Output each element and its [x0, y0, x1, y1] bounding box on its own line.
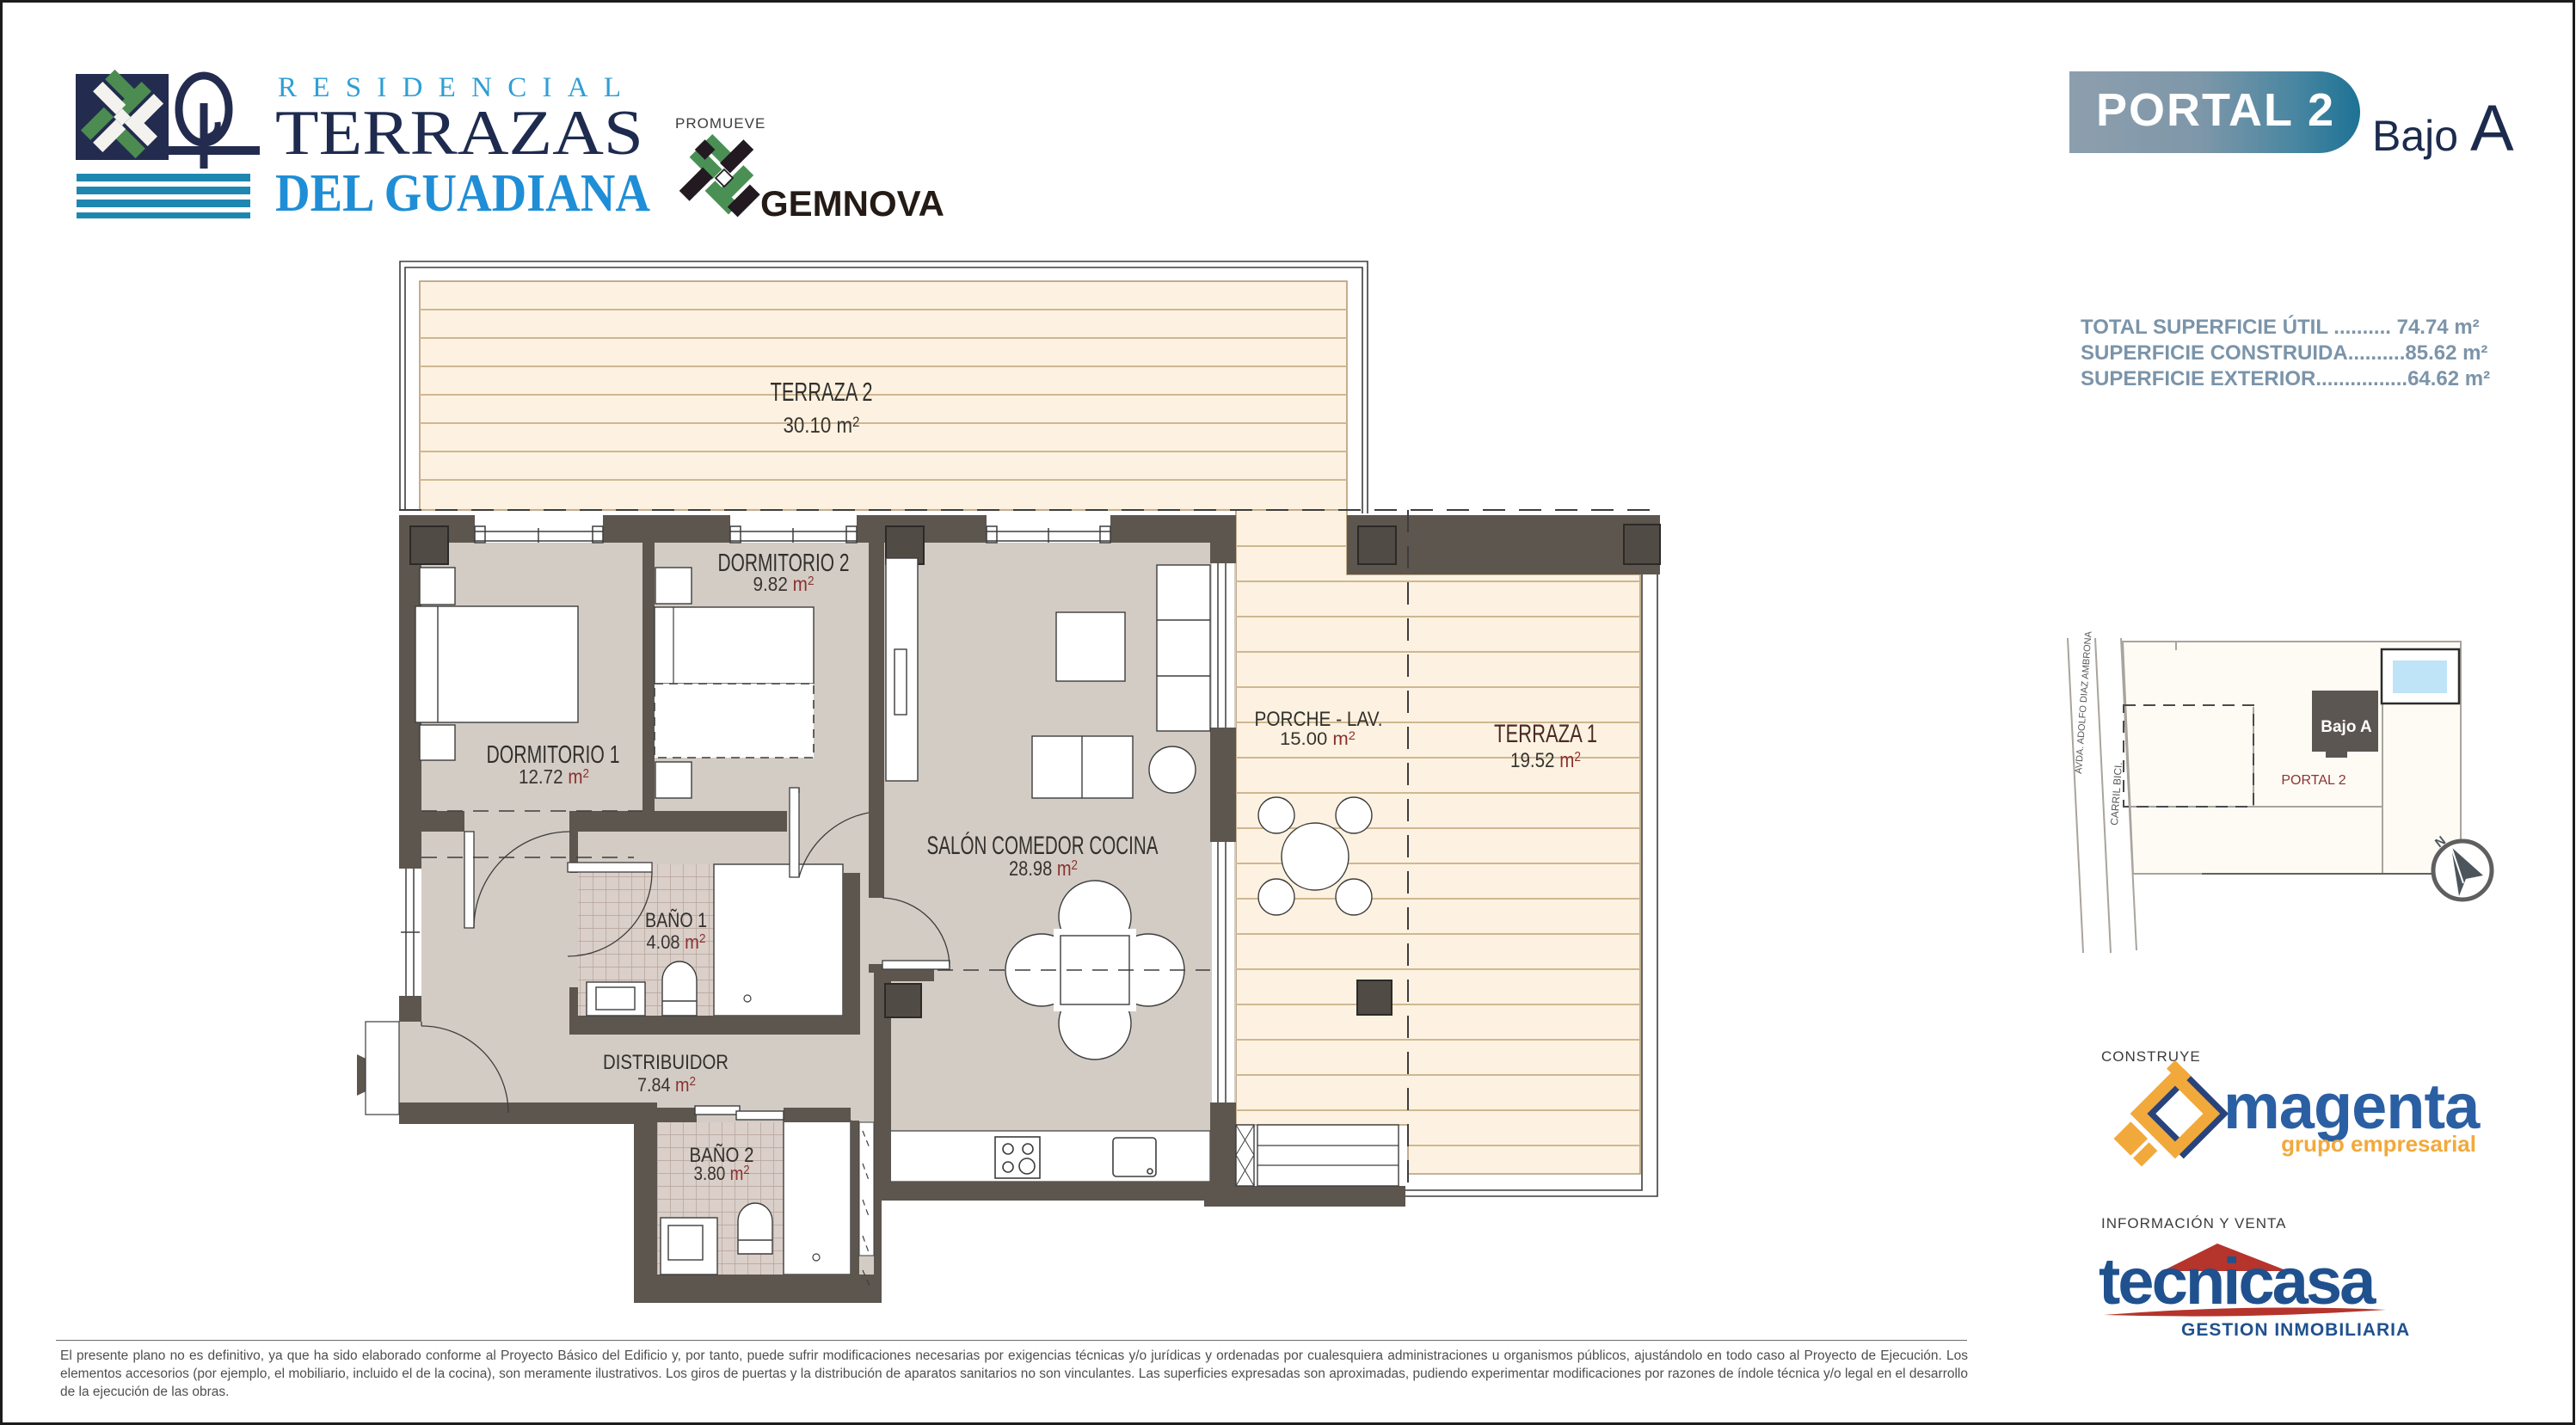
- svg-text:tecnicasa: tecnicasa: [2099, 1245, 2376, 1318]
- svg-text:Bajo A: Bajo A: [2321, 718, 2372, 736]
- svg-text:GESTION INMOBILIARIA: GESTION INMOBILIARIA: [2181, 1320, 2410, 1340]
- svg-text:PORTAL 2: PORTAL 2: [2281, 773, 2345, 788]
- svg-text:CARRIL BICI.: CARRIL BICI.: [2108, 762, 2124, 826]
- svg-text:CONSTRUYE: CONSTRUYE: [2101, 1048, 2201, 1065]
- svg-text:grupo empresarial: grupo empresarial: [2281, 1131, 2476, 1157]
- svg-text:AVDA. ADOLFO DIAZ AMBRONA: AVDA. ADOLFO DIAZ AMBRONA: [2074, 630, 2094, 774]
- svg-text:INFORMACIÓN Y VENTA: INFORMACIÓN Y VENTA: [2101, 1215, 2286, 1232]
